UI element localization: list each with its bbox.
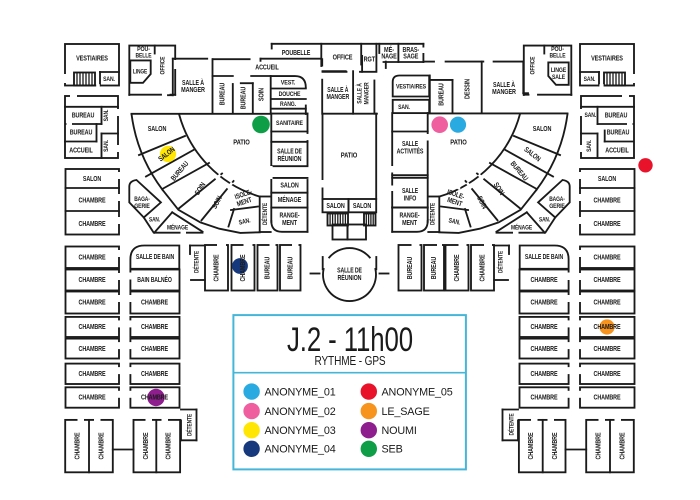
svg-text:RANG.: RANG. bbox=[280, 101, 296, 108]
svg-text:CHAMBRE: CHAMBRE bbox=[531, 393, 558, 402]
svg-text:GERIE: GERIE bbox=[549, 203, 565, 210]
svg-text:MÉNAGE: MÉNAGE bbox=[167, 223, 189, 232]
svg-text:CHAMBRE: CHAMBRE bbox=[550, 432, 559, 459]
svg-text:PATIO: PATIO bbox=[450, 138, 467, 147]
svg-text:SALLE DE: SALLE DE bbox=[337, 268, 362, 275]
svg-text:CHAMBRE: CHAMBRE bbox=[531, 369, 558, 378]
svg-text:SOIN: SOIN bbox=[257, 88, 266, 101]
svg-text:PATIO: PATIO bbox=[341, 150, 358, 159]
svg-text:OFFICE: OFFICE bbox=[160, 56, 167, 75]
svg-text:SALLE: SALLE bbox=[402, 141, 419, 148]
svg-text:CHAMBRE: CHAMBRE bbox=[452, 254, 461, 281]
svg-text:CHAMBRE: CHAMBRE bbox=[79, 252, 106, 261]
svg-text:SALLE DE BAIN: SALLE DE BAIN bbox=[136, 254, 174, 261]
svg-text:SALLE: SALLE bbox=[402, 188, 419, 195]
svg-text:INFO: INFO bbox=[404, 196, 417, 203]
svg-text:NAGE: NAGE bbox=[381, 52, 397, 61]
svg-text:ANONYME_05: ANONYME_05 bbox=[382, 386, 453, 398]
svg-text:POUBELLE: POUBELLE bbox=[282, 48, 311, 57]
svg-text:ACTIVITÉS: ACTIVITÉS bbox=[397, 147, 424, 156]
svg-text:DÉTENTE: DÉTENTE bbox=[428, 203, 437, 225]
svg-text:CHAMBRE: CHAMBRE bbox=[73, 432, 82, 459]
svg-text:SALON: SALON bbox=[326, 201, 344, 210]
svg-text:CHAMBRE: CHAMBRE bbox=[141, 344, 168, 353]
svg-text:SALON: SALON bbox=[83, 174, 101, 183]
svg-text:BUREAU: BUREAU bbox=[72, 111, 95, 120]
svg-text:BUREAU: BUREAU bbox=[437, 83, 446, 106]
svg-text:SAN.: SAN. bbox=[586, 140, 593, 152]
svg-text:SALLE DE BAIN: SALLE DE BAIN bbox=[525, 254, 563, 261]
svg-text:CHAMBRE: CHAMBRE bbox=[594, 322, 621, 331]
svg-text:BUREAU: BUREAU bbox=[607, 128, 630, 137]
svg-text:MENT: MENT bbox=[282, 220, 297, 227]
svg-text:NOUMI: NOUMI bbox=[382, 425, 417, 437]
svg-text:CHAMBRE: CHAMBRE bbox=[594, 275, 621, 284]
svg-text:MANGER: MANGER bbox=[364, 82, 371, 104]
svg-text:SALLE À: SALLE À bbox=[327, 85, 348, 94]
svg-text:RANGE-: RANGE- bbox=[279, 213, 300, 220]
svg-text:SAN.: SAN. bbox=[584, 112, 596, 119]
svg-text:SAN.: SAN. bbox=[103, 140, 110, 152]
svg-text:SAN.: SAN. bbox=[149, 217, 160, 224]
svg-text:MANGER: MANGER bbox=[181, 85, 205, 94]
svg-text:CHAMBRE: CHAMBRE bbox=[531, 275, 558, 284]
svg-text:RANGE-: RANGE- bbox=[399, 213, 420, 220]
svg-text:BUREAU: BUREAU bbox=[429, 257, 438, 280]
svg-text:MENT: MENT bbox=[402, 220, 417, 227]
svg-text:CHAMBRE: CHAMBRE bbox=[79, 369, 106, 378]
svg-text:BUREAU: BUREAU bbox=[218, 83, 227, 106]
svg-text:ACCUEIL: ACCUEIL bbox=[605, 146, 629, 155]
svg-text:GERIE: GERIE bbox=[134, 203, 150, 210]
svg-text:SALON: SALON bbox=[148, 124, 167, 133]
svg-text:VEST.: VEST. bbox=[281, 80, 296, 87]
svg-text:SAN.: SAN. bbox=[539, 217, 550, 224]
svg-text:CHAMBRE: CHAMBRE bbox=[79, 275, 106, 284]
svg-text:BUREAU: BUREAU bbox=[285, 257, 294, 280]
svg-text:OFFICE: OFFICE bbox=[530, 56, 537, 75]
svg-text:MÉNAGE: MÉNAGE bbox=[278, 195, 302, 204]
svg-text:SALON: SALON bbox=[353, 201, 371, 210]
svg-text:PATIO: PATIO bbox=[233, 138, 250, 147]
svg-text:SAN.: SAN. bbox=[103, 76, 115, 83]
svg-text:BUREAU: BUREAU bbox=[263, 257, 272, 280]
svg-text:MÉNAGE: MÉNAGE bbox=[511, 223, 533, 232]
svg-text:CHAMBRE: CHAMBRE bbox=[238, 254, 247, 281]
svg-text:DOUCHE: DOUCHE bbox=[279, 91, 301, 98]
svg-text:CHAMBRE: CHAMBRE bbox=[531, 298, 558, 307]
svg-text:CHAMBRE: CHAMBRE bbox=[164, 432, 173, 459]
svg-text:SALE: SALE bbox=[552, 74, 565, 81]
svg-text:SALON: SALON bbox=[598, 174, 616, 183]
svg-text:CHAMBRE: CHAMBRE bbox=[594, 219, 621, 228]
svg-text:DÉTENTE: DÉTENTE bbox=[185, 414, 194, 436]
svg-text:CHAMBRE: CHAMBRE bbox=[531, 344, 558, 353]
svg-text:DESSIN: DESSIN bbox=[463, 79, 472, 99]
svg-text:BELLE: BELLE bbox=[550, 53, 566, 60]
svg-text:RYTHME - GPS: RYTHME - GPS bbox=[315, 354, 386, 368]
svg-text:CHAMBRE: CHAMBRE bbox=[141, 393, 168, 402]
svg-text:SEB: SEB bbox=[382, 444, 403, 456]
svg-text:BUREAU: BUREAU bbox=[605, 111, 628, 120]
svg-text:MANGER: MANGER bbox=[326, 94, 349, 101]
svg-text:BELLE: BELLE bbox=[136, 53, 152, 60]
svg-text:ANONYME_01: ANONYME_01 bbox=[265, 386, 336, 398]
svg-text:RGT: RGT bbox=[364, 54, 376, 63]
svg-text:BUREAU: BUREAU bbox=[405, 257, 414, 280]
svg-text:SALON: SALON bbox=[280, 181, 298, 190]
svg-text:DÉTENTE: DÉTENTE bbox=[260, 203, 269, 225]
svg-text:CHAMBRE: CHAMBRE bbox=[141, 369, 168, 378]
svg-text:OFFICE: OFFICE bbox=[333, 53, 353, 62]
svg-text:CHAMBRE: CHAMBRE bbox=[594, 344, 621, 353]
svg-text:CHAMBRE: CHAMBRE bbox=[79, 393, 106, 402]
svg-text:DÉTENTE: DÉTENTE bbox=[496, 251, 505, 273]
svg-text:SAN.: SAN. bbox=[238, 217, 251, 226]
svg-text:LINGE: LINGE bbox=[133, 69, 147, 76]
svg-text:CHAMBRE: CHAMBRE bbox=[79, 322, 106, 331]
svg-text:CHAMBRE: CHAMBRE bbox=[79, 298, 106, 307]
svg-text:CHAMBRE: CHAMBRE bbox=[594, 432, 603, 459]
svg-text:VESTIAIRES: VESTIAIRES bbox=[396, 84, 426, 91]
svg-text:MANGER: MANGER bbox=[492, 87, 516, 96]
svg-text:CHAMBRE: CHAMBRE bbox=[594, 298, 621, 307]
svg-text:CHAMBRE: CHAMBRE bbox=[594, 369, 621, 378]
svg-text:DÉTENTE: DÉTENTE bbox=[507, 413, 516, 435]
svg-text:SAN.: SAN. bbox=[448, 217, 461, 226]
svg-text:CHAMBRE: CHAMBRE bbox=[478, 254, 487, 281]
svg-text:CHAMBRE: CHAMBRE bbox=[617, 432, 626, 459]
svg-text:CHAMBRE: CHAMBRE bbox=[79, 196, 106, 205]
svg-text:CHAMBRE: CHAMBRE bbox=[594, 196, 621, 205]
svg-text:SAN.: SAN. bbox=[398, 104, 410, 111]
svg-text:SAN.: SAN. bbox=[103, 109, 110, 121]
svg-text:CHAMBRE: CHAMBRE bbox=[79, 344, 106, 353]
svg-text:CHAMBRE: CHAMBRE bbox=[141, 432, 150, 459]
svg-text:SOIN: SOIN bbox=[492, 181, 507, 197]
svg-text:SALLE DE: SALLE DE bbox=[277, 149, 302, 156]
svg-text:ANONYME_04: ANONYME_04 bbox=[265, 444, 336, 456]
svg-text:VESTIAIRES: VESTIAIRES bbox=[591, 54, 623, 63]
svg-text:CHAMBRE: CHAMBRE bbox=[594, 393, 621, 402]
svg-text:ANONYME_03: ANONYME_03 bbox=[265, 425, 336, 437]
svg-text:BUREAU: BUREAU bbox=[70, 128, 93, 137]
svg-text:CHAMBRE: CHAMBRE bbox=[531, 322, 558, 331]
svg-text:ANONYME_02: ANONYME_02 bbox=[265, 406, 336, 418]
svg-text:CHAMBRE: CHAMBRE bbox=[96, 432, 105, 459]
svg-text:SANITAIRE: SANITAIRE bbox=[276, 120, 303, 127]
svg-text:SOIN: SOIN bbox=[192, 181, 207, 197]
svg-text:VESTIAIRES: VESTIAIRES bbox=[76, 54, 108, 63]
svg-text:CHAMBRE: CHAMBRE bbox=[594, 252, 621, 261]
svg-text:CHAMBRE: CHAMBRE bbox=[212, 254, 221, 281]
svg-text:DÉTENTE: DÉTENTE bbox=[192, 251, 201, 273]
svg-text:LE_SAGE: LE_SAGE bbox=[382, 406, 430, 418]
svg-text:SAGE: SAGE bbox=[403, 52, 418, 61]
svg-text:SALLE À: SALLE À bbox=[355, 83, 364, 104]
svg-text:BUREAU: BUREAU bbox=[239, 87, 248, 110]
svg-text:SALON: SALON bbox=[533, 124, 552, 133]
svg-text:ACCUEIL: ACCUEIL bbox=[255, 63, 279, 72]
svg-text:SAN.: SAN. bbox=[584, 76, 596, 83]
svg-text:ACCUEIL: ACCUEIL bbox=[69, 146, 93, 155]
svg-text:CHAMBRE: CHAMBRE bbox=[79, 219, 106, 228]
svg-text:RÉUNION: RÉUNION bbox=[338, 273, 362, 282]
svg-text:BAGA-: BAGA- bbox=[134, 196, 150, 203]
svg-text:RÉUNION: RÉUNION bbox=[278, 154, 302, 163]
svg-text:BAIN BALNÉO: BAIN BALNÉO bbox=[137, 275, 172, 284]
svg-text:CHAMBRE: CHAMBRE bbox=[141, 298, 168, 307]
svg-text:CHAMBRE: CHAMBRE bbox=[141, 322, 168, 331]
svg-text:BAGA-: BAGA- bbox=[549, 196, 565, 203]
svg-text:CHAMBRE: CHAMBRE bbox=[526, 432, 535, 459]
